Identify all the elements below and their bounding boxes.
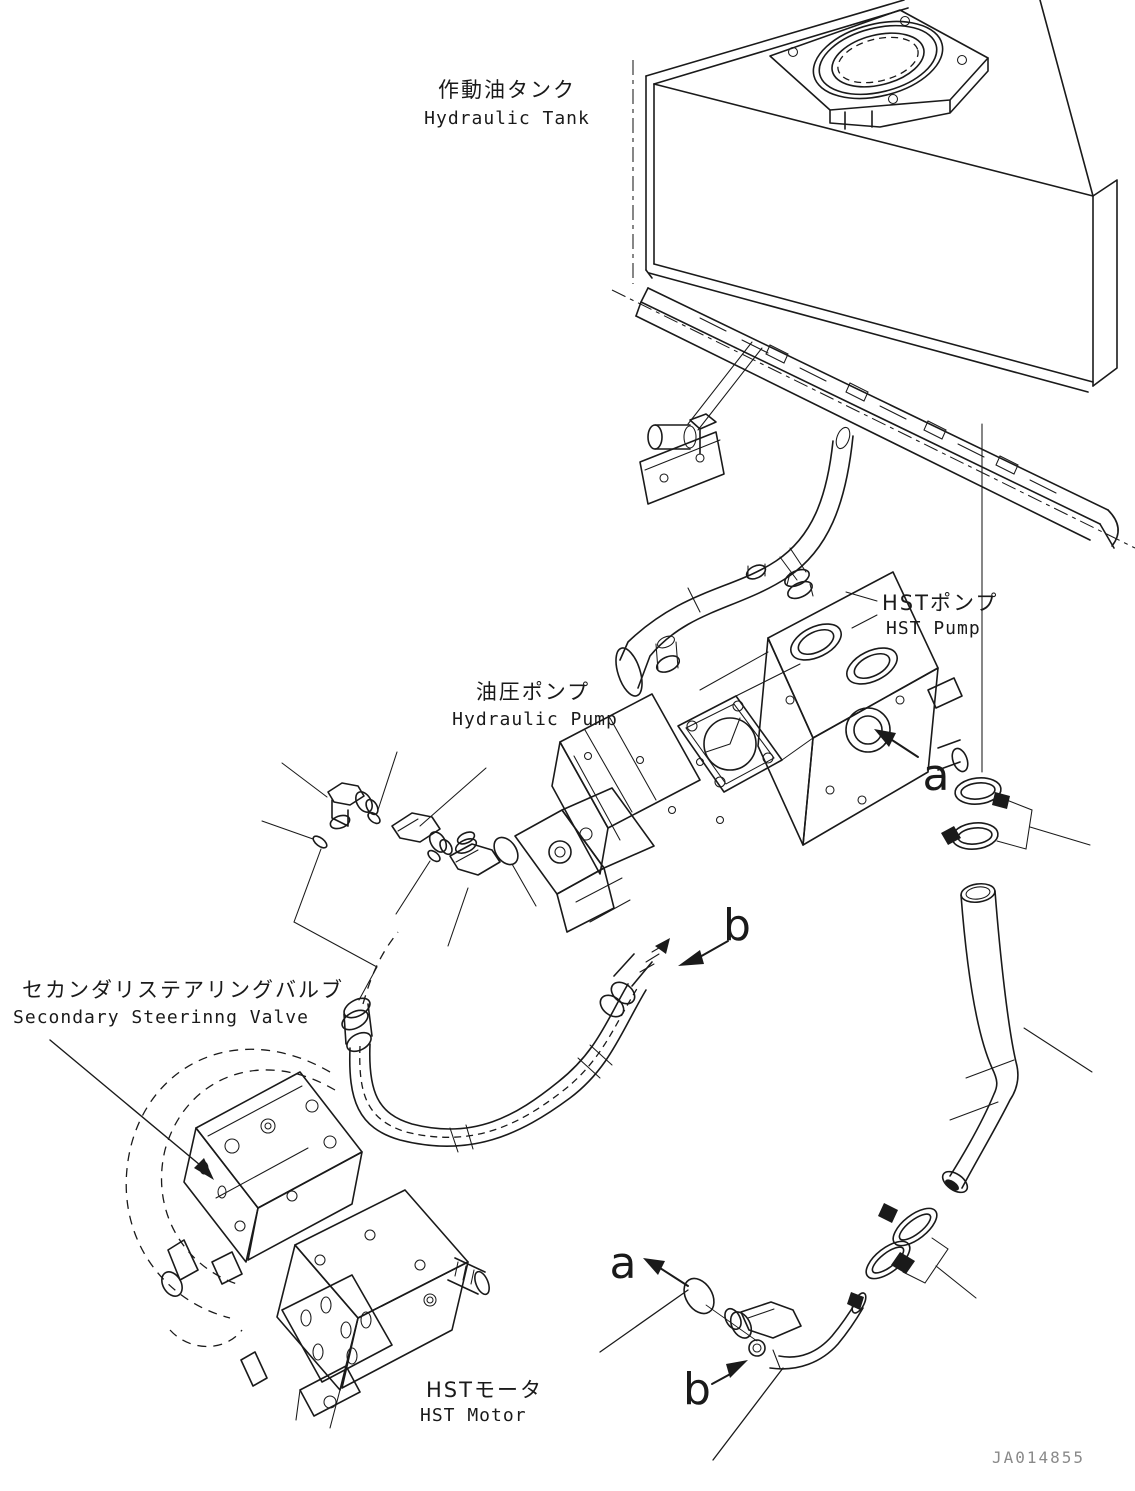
- hydraulic-tank-drawing: [612, 0, 1135, 548]
- callout-a-lower-letter: a: [610, 1238, 637, 1289]
- bent-tube-drawing: [939, 882, 1092, 1197]
- label-hydraulic-tank: 作動油タンク Hydraulic Tank: [424, 78, 590, 129]
- callout-b-lower-letter: b: [683, 1364, 711, 1415]
- fittings-drawing: [262, 752, 536, 1000]
- callout-b-upper-letter: b: [723, 900, 751, 951]
- label-hst-motor-en: HST Motor: [420, 1405, 527, 1426]
- callout-b-lower: b: [683, 1360, 748, 1415]
- drawing-number: JA014855: [992, 1448, 1085, 1467]
- hose-clamps-lower-drawing: [860, 1202, 976, 1298]
- label-hst-motor: HSTモータ HST Motor: [420, 1378, 543, 1426]
- label-hst-pump-ja: HSTポンプ: [882, 591, 998, 615]
- callout-a-upper: a: [874, 729, 949, 801]
- steering-hose-drawing: [339, 938, 670, 1152]
- label-secondary-steering-valve-en: Secondary Steerinng Valve: [13, 1007, 309, 1028]
- callout-b-upper: b: [678, 900, 751, 966]
- callout-a-lower: a: [610, 1238, 688, 1289]
- label-hst-pump: HSTポンプ HST Pump: [846, 591, 998, 639]
- parts-diagram-page: a b a b 作動油タンク Hydraulic Tank HSTポンプ HST…: [0, 0, 1135, 1491]
- label-hydraulic-pump: 油圧ポンプ Hydraulic Pump: [452, 680, 618, 730]
- label-hydraulic-pump-ja: 油圧ポンプ: [476, 680, 590, 704]
- label-hydraulic-tank-en: Hydraulic Tank: [424, 108, 590, 129]
- label-hydraulic-pump-en: Hydraulic Pump: [452, 709, 618, 730]
- label-hydraulic-tank-ja: 作動油タンク: [438, 78, 576, 102]
- label-hst-pump-en: HST Pump: [886, 618, 981, 639]
- label-hst-motor-ja: HSTモータ: [426, 1378, 543, 1402]
- callout-a-upper-letter: a: [923, 750, 950, 801]
- label-secondary-steering-valve: セカンダリステアリングバルブ Secondary Steerinng Valve: [13, 978, 344, 1028]
- diagram-canvas: a b a b 作動油タンク Hydraulic Tank HSTポンプ HST…: [0, 0, 1135, 1491]
- label-secondary-steering-valve-ja: セカンダリステアリングバルブ: [22, 978, 344, 1002]
